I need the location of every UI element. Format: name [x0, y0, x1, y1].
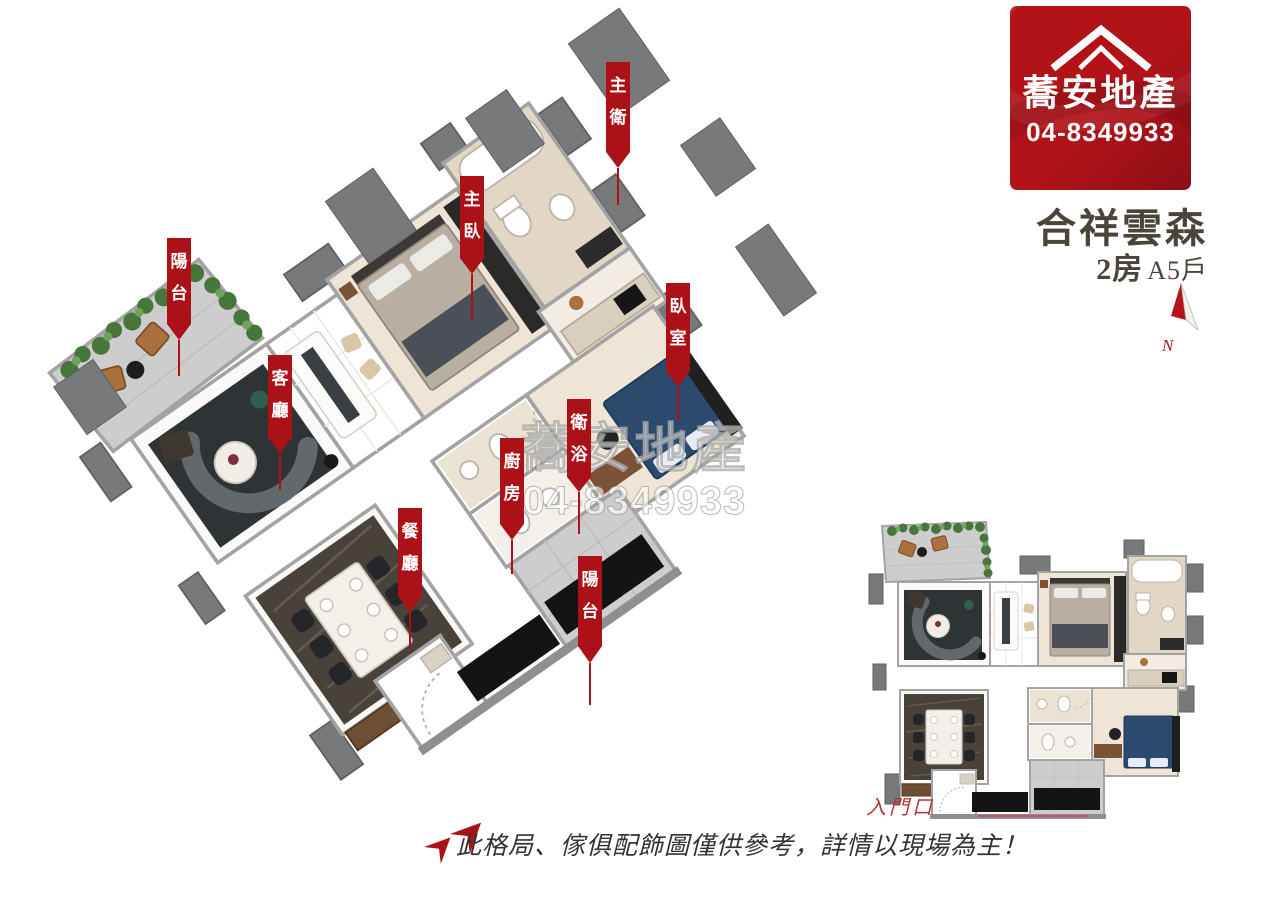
project-rooms: 2房	[1096, 253, 1143, 286]
roof-icon	[1042, 22, 1160, 74]
compass-north-label: N	[1161, 336, 1175, 355]
entrance-label: 入門口	[866, 791, 935, 820]
mini-floorplan	[869, 522, 1203, 820]
brand-name: 蕎安地產	[1022, 74, 1178, 112]
project-unit: A5戶	[1147, 256, 1208, 285]
brand-phone: 04-8349933	[1026, 117, 1175, 148]
compass-icon: N	[1161, 283, 1198, 355]
project-subtitle: 2房A5戶	[1008, 244, 1208, 288]
disclaimer-text: 此格局、傢俱配飾圖僅供參考，詳情以現場為主！	[456, 826, 1028, 862]
brand-logo-card: 蕎安地產 04-8349933	[1010, 6, 1191, 190]
